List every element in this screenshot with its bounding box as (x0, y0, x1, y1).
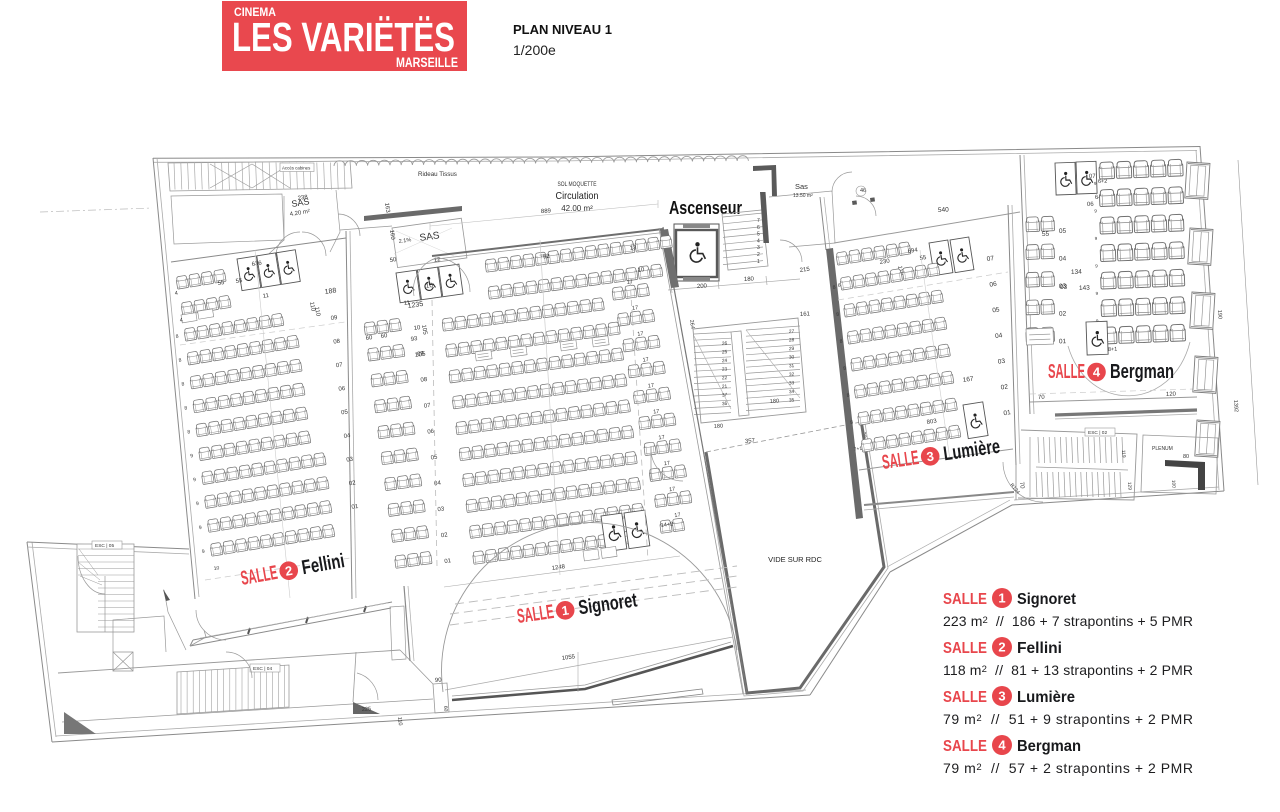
svg-text:ESC | 02: ESC | 02 (1088, 430, 1107, 436)
svg-text:22: 22 (722, 375, 728, 381)
svg-text:05: 05 (1059, 228, 1067, 235)
svg-text:Fellini: Fellini (1017, 640, 1062, 657)
svg-text:110: 110 (396, 717, 403, 726)
svg-text:35: 35 (789, 397, 795, 403)
svg-text:129: 129 (1126, 482, 1133, 491)
svg-text:29: 29 (789, 346, 795, 352)
svg-text:SALLE: SALLE (943, 738, 987, 755)
svg-text:60: 60 (442, 706, 449, 712)
svg-text:02: 02 (1059, 311, 1067, 318)
svg-text:161: 161 (800, 311, 811, 318)
svg-text:225: 225 (362, 706, 372, 713)
svg-text:17: 17 (637, 331, 644, 338)
svg-text:LES VARIËTËS: LES VARIËTËS (232, 14, 455, 60)
svg-text:180: 180 (744, 276, 755, 283)
svg-text:6: 6 (757, 225, 760, 231)
svg-text:PLAN NIVEAU 1: PLAN NIVEAU 1 (513, 22, 612, 37)
svg-text:17: 17 (669, 486, 676, 493)
svg-text:180: 180 (770, 398, 780, 405)
svg-text:200: 200 (697, 283, 708, 290)
svg-text:SALLE: SALLE (943, 591, 987, 608)
svg-text:28: 28 (789, 337, 795, 343)
svg-text:1: 1 (757, 259, 760, 265)
svg-text:17: 17 (664, 460, 671, 467)
svg-text:889: 889 (541, 208, 552, 215)
svg-text:26: 26 (722, 341, 728, 347)
svg-text:119: 119 (1120, 450, 1127, 458)
svg-text:Rideau Tissus: Rideau Tissus (418, 171, 457, 178)
svg-text:07: 07 (1089, 174, 1097, 180)
svg-text:SOL MOQUETTE: SOL MOQUETTE (558, 181, 597, 188)
svg-text:SALLE: SALLE (943, 640, 987, 657)
svg-text:36: 36 (722, 401, 728, 407)
svg-text:Ascenseur: Ascenseur (669, 197, 742, 218)
svg-text:17: 17 (674, 512, 681, 519)
svg-text:Signoret: Signoret (1017, 591, 1076, 608)
svg-text:05: 05 (992, 306, 1001, 314)
svg-text:17: 17 (632, 305, 639, 312)
svg-text:2: 2 (998, 640, 1005, 655)
svg-text:01: 01 (1003, 409, 1012, 417)
svg-text:134: 134 (1071, 269, 1082, 276)
svg-text:Bergman: Bergman (1017, 738, 1081, 755)
svg-text:30: 30 (789, 354, 795, 360)
svg-text:06: 06 (1087, 202, 1095, 208)
svg-text:37: 37 (722, 392, 728, 398)
svg-text:55: 55 (1042, 231, 1050, 238)
svg-text:Bergman: Bergman (1110, 361, 1174, 383)
svg-text:10: 10 (425, 282, 434, 290)
svg-text:04: 04 (995, 332, 1004, 340)
svg-text:120: 120 (1166, 392, 1177, 398)
svg-text:01: 01 (1059, 338, 1067, 345)
svg-text:06: 06 (989, 281, 998, 289)
svg-text:17: 17 (653, 409, 660, 416)
svg-text:180: 180 (714, 423, 724, 430)
svg-text:MARSEILLE: MARSEILLE (396, 55, 458, 70)
svg-text:17: 17 (658, 435, 665, 442)
svg-text:Circulation: Circulation (556, 190, 599, 202)
svg-text:02: 02 (1000, 383, 1009, 391)
svg-text:Lumière: Lumière (1017, 689, 1075, 706)
svg-text:118 m2 // 81 + 13 strapontin: 118 m2 // 81 + 13 strapontins + 2 PMR (943, 662, 1193, 678)
svg-text:ESC | 05: ESC | 05 (95, 543, 114, 549)
svg-text:PLENUM: PLENUM (1152, 446, 1173, 452)
svg-text:100: 100 (1170, 480, 1177, 489)
svg-text:4: 4 (757, 238, 760, 244)
svg-text:1392: 1392 (1232, 400, 1239, 413)
svg-text:190: 190 (1216, 310, 1223, 320)
svg-text:27: 27 (789, 329, 795, 335)
svg-text:24: 24 (722, 358, 728, 364)
svg-text:1/200e: 1/200e (513, 42, 556, 58)
svg-text:8+1: 8+1 (1108, 347, 1118, 353)
svg-text:31: 31 (789, 363, 795, 369)
svg-text:3: 3 (757, 245, 760, 251)
svg-text:34: 34 (789, 389, 795, 395)
svg-text:540: 540 (938, 206, 950, 214)
svg-text:ESC | 04: ESC | 04 (253, 666, 272, 672)
svg-text:VIDE SUR RDC: VIDE SUR RDC (768, 555, 822, 564)
svg-text:04: 04 (1059, 255, 1067, 262)
svg-text:13.50 m²: 13.50 m² (793, 193, 813, 199)
svg-text:4: 4 (1093, 365, 1101, 380)
svg-text:SALLE: SALLE (943, 689, 987, 706)
svg-text:Sas: Sas (795, 182, 808, 191)
svg-text:17: 17 (642, 357, 649, 364)
svg-text:33: 33 (789, 380, 795, 386)
svg-text:23: 23 (722, 366, 728, 372)
svg-text:2: 2 (757, 252, 760, 258)
svg-text:143: 143 (1079, 285, 1090, 292)
svg-text:5: 5 (757, 232, 760, 238)
svg-text:17: 17 (648, 383, 655, 390)
svg-text:Accès cabines: Accès cabines (282, 165, 311, 170)
svg-text:223 m2 // 186 + 7 strapontin: 223 m2 // 186 + 7 strapontins + 5 PMR (943, 613, 1193, 629)
svg-text:32: 32 (789, 372, 795, 378)
svg-text:SALLE: SALLE (1048, 361, 1085, 383)
svg-text:03: 03 (998, 358, 1007, 366)
svg-text:07: 07 (986, 255, 995, 263)
svg-text:80: 80 (1183, 454, 1189, 460)
svg-text:21: 21 (722, 384, 728, 390)
svg-text:70: 70 (1038, 395, 1046, 401)
svg-text:03: 03 (1060, 284, 1068, 291)
svg-text:7: 7 (757, 218, 760, 224)
svg-text:3: 3 (998, 689, 1005, 704)
svg-text:25: 25 (722, 349, 728, 355)
svg-text:264: 264 (688, 319, 695, 329)
svg-text:4: 4 (998, 738, 1006, 753)
svg-text:1: 1 (998, 591, 1005, 606)
svg-text:6+2: 6+2 (1098, 179, 1108, 185)
